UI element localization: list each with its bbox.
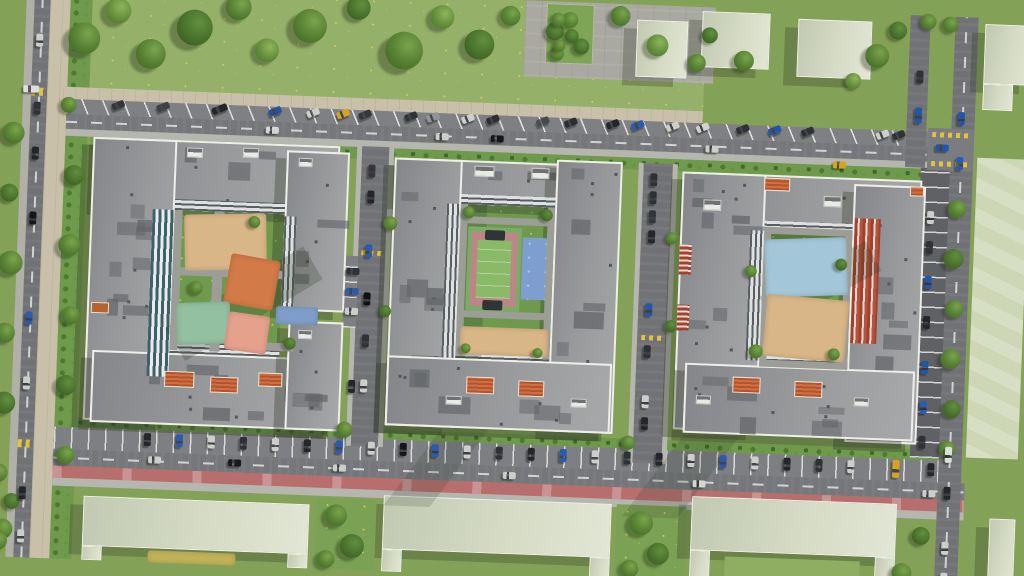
car xyxy=(32,146,39,159)
car xyxy=(228,459,241,466)
roof-patch xyxy=(583,302,605,311)
roof-vent xyxy=(433,207,436,210)
south-building-1 xyxy=(82,496,310,555)
roof-vent xyxy=(122,316,125,319)
roof-vent xyxy=(614,173,617,176)
car xyxy=(368,164,375,177)
roof-vent xyxy=(456,367,459,370)
complex3-west-orange-accent-1 xyxy=(679,244,692,274)
roof-patch xyxy=(693,179,704,193)
roof-vent xyxy=(734,197,737,200)
car xyxy=(176,434,183,447)
car xyxy=(926,241,933,254)
car xyxy=(272,438,279,451)
car xyxy=(945,447,953,463)
roof-patch xyxy=(875,356,894,371)
tree xyxy=(664,320,676,332)
roof-patch xyxy=(571,219,591,235)
car xyxy=(266,126,279,133)
car xyxy=(927,211,934,224)
car xyxy=(687,454,694,467)
south-building-2-stub-e xyxy=(589,557,610,576)
roof-pergola xyxy=(764,178,790,192)
tree xyxy=(920,13,937,30)
car xyxy=(463,445,470,458)
roof-patch xyxy=(888,321,907,329)
north-building-4-ext xyxy=(982,84,1013,111)
car xyxy=(641,417,648,430)
tree xyxy=(666,232,678,244)
roof-vent xyxy=(843,197,846,200)
pink-playground-left xyxy=(224,311,271,355)
roof-vent xyxy=(824,415,827,418)
roof-vent xyxy=(314,371,317,374)
complex3-bottom-wing xyxy=(683,363,916,442)
midright-speedbump xyxy=(641,335,663,341)
car xyxy=(491,135,504,142)
roof-vent xyxy=(743,184,746,187)
car xyxy=(36,34,43,47)
north-building-3 xyxy=(796,19,872,80)
car xyxy=(833,161,846,168)
south-building-3 xyxy=(690,496,897,558)
roof-vent xyxy=(189,407,192,410)
roof-patch xyxy=(571,169,585,180)
car xyxy=(25,311,32,324)
car xyxy=(144,433,151,446)
roof-patch xyxy=(559,413,572,425)
car xyxy=(692,480,705,487)
car xyxy=(362,334,369,347)
car xyxy=(655,453,662,466)
tree xyxy=(891,563,912,576)
roof-access-box xyxy=(445,396,461,406)
roof-vent xyxy=(315,241,318,244)
car xyxy=(751,456,758,469)
car xyxy=(892,460,900,478)
roof-patch xyxy=(414,372,427,387)
car xyxy=(17,529,24,542)
roof-pergola xyxy=(518,380,545,397)
car xyxy=(336,440,343,453)
roof-vent xyxy=(888,282,891,285)
car xyxy=(360,379,367,392)
car xyxy=(304,439,311,452)
car xyxy=(23,376,30,389)
roof-pergola xyxy=(258,372,283,387)
roof-patch xyxy=(713,308,727,321)
roof-patch xyxy=(573,311,604,329)
roof-vent xyxy=(326,184,329,187)
car xyxy=(346,288,359,295)
car xyxy=(916,70,923,83)
car xyxy=(815,459,822,472)
roof-vent xyxy=(555,419,558,422)
car xyxy=(346,268,359,275)
north-building-4 xyxy=(983,24,1024,86)
car xyxy=(918,436,925,449)
car xyxy=(367,190,374,203)
car xyxy=(365,244,372,257)
car xyxy=(941,542,948,555)
car xyxy=(363,292,370,305)
car xyxy=(956,157,963,170)
roof-patch xyxy=(732,216,750,225)
blue-mat-left xyxy=(275,306,318,326)
roof-access-box xyxy=(854,397,869,407)
car xyxy=(847,460,854,473)
south-building-3-stub-w xyxy=(689,550,710,576)
roof-vent xyxy=(538,402,541,405)
car xyxy=(936,144,949,151)
car xyxy=(333,464,346,471)
roof-pergola xyxy=(732,377,761,394)
roof-vent xyxy=(194,165,197,168)
car xyxy=(399,443,406,456)
roof-vent xyxy=(706,325,709,328)
complex1-right-wing-lower xyxy=(284,320,343,431)
car xyxy=(705,145,718,152)
roof-vent xyxy=(189,396,192,399)
car xyxy=(645,303,652,316)
roof-pergola xyxy=(164,371,195,388)
car xyxy=(923,316,930,329)
car xyxy=(559,449,566,462)
roof-vent xyxy=(527,180,530,183)
car xyxy=(919,401,926,414)
car xyxy=(649,210,656,223)
car xyxy=(924,276,931,289)
tree xyxy=(620,559,639,576)
yellow-court-bottom xyxy=(147,550,235,565)
south-building-4 xyxy=(987,519,1016,576)
car xyxy=(527,448,534,461)
roof-patch xyxy=(812,421,843,437)
car xyxy=(33,102,40,115)
roof-vent xyxy=(299,350,302,353)
car xyxy=(623,451,630,464)
south-courtyard-3 xyxy=(724,556,860,576)
roof-vent xyxy=(730,348,733,351)
roof-access-box xyxy=(703,199,721,211)
orange-playground-left xyxy=(223,253,281,311)
tree xyxy=(845,73,862,90)
roof-patch xyxy=(881,302,895,319)
roof-patch xyxy=(702,376,729,386)
roof-access-box xyxy=(531,168,549,180)
tree xyxy=(0,183,19,202)
car xyxy=(921,361,928,374)
roof-access-box xyxy=(298,330,312,340)
roof-patch xyxy=(883,335,912,350)
car xyxy=(958,112,965,125)
car xyxy=(648,230,655,243)
car xyxy=(23,85,39,93)
roof-pergola xyxy=(210,376,239,393)
crosswalk-west-south xyxy=(18,439,34,448)
roof-access-box xyxy=(696,395,711,405)
roof-access-box xyxy=(243,148,259,159)
roof-patch xyxy=(557,342,569,356)
car xyxy=(643,345,650,358)
south-building-1-stub-w xyxy=(81,546,102,561)
roof-vent xyxy=(127,146,130,149)
world xyxy=(0,0,1024,576)
car xyxy=(943,487,950,500)
car xyxy=(19,486,26,499)
aerial-masterplan-render xyxy=(0,0,1024,576)
roof-patch xyxy=(130,205,145,219)
roof-vent xyxy=(826,405,829,408)
car xyxy=(650,173,657,186)
car xyxy=(495,446,502,459)
roof-access-box xyxy=(298,158,312,168)
roof-patch xyxy=(519,399,539,414)
roof-vent xyxy=(694,387,697,390)
roof-vent xyxy=(913,312,916,315)
roof-vent xyxy=(722,190,725,193)
roof-patch xyxy=(203,407,231,421)
roof-access-box xyxy=(187,147,203,158)
tree xyxy=(0,463,8,482)
east-pale-field xyxy=(966,158,1024,460)
sport-goal-south xyxy=(482,300,502,311)
roof-vent xyxy=(409,220,412,223)
roof-access-box xyxy=(823,196,841,208)
roof-vent xyxy=(500,423,503,426)
car xyxy=(436,133,449,140)
car xyxy=(922,490,935,497)
car xyxy=(431,444,438,457)
roof-patch xyxy=(740,416,757,434)
car xyxy=(649,191,656,204)
roof-patch xyxy=(317,220,349,229)
south-building-2-stub-w xyxy=(381,549,402,572)
roof-vent xyxy=(399,374,402,377)
south-building-1-stub-e xyxy=(287,554,308,569)
sport-goal-north xyxy=(485,230,505,241)
car xyxy=(783,458,790,471)
roof-vent xyxy=(771,411,774,414)
car xyxy=(719,455,726,468)
roof-patch xyxy=(407,279,429,298)
roof-pergola xyxy=(910,186,924,197)
roof-patch xyxy=(248,411,264,421)
roof-vent xyxy=(131,193,134,196)
sport-field-pitch xyxy=(476,240,512,299)
roof-patch xyxy=(293,393,320,407)
roof-vent xyxy=(310,407,313,410)
roof-patch xyxy=(259,151,277,160)
roof-patch xyxy=(401,191,418,201)
roof-pergola xyxy=(794,381,823,398)
car xyxy=(29,211,36,224)
car xyxy=(641,395,648,408)
roof-vent xyxy=(403,376,406,379)
car xyxy=(591,450,598,463)
car xyxy=(348,380,355,393)
complex2-bottom-wing xyxy=(385,355,613,434)
complex1-entry-canopy xyxy=(91,302,109,314)
complex3-west-orange-accent-2 xyxy=(676,304,689,330)
roof-vent xyxy=(609,263,612,266)
teal-playground-left xyxy=(176,301,231,345)
tree xyxy=(911,527,930,546)
car xyxy=(927,463,934,476)
roof-patch xyxy=(228,162,251,181)
roof-access-box xyxy=(570,398,586,408)
roof-patch xyxy=(137,220,152,233)
roof-patch xyxy=(701,212,714,229)
roof-patch xyxy=(819,407,845,415)
roof-pergola xyxy=(466,376,495,394)
roof-access-box xyxy=(474,165,494,177)
car xyxy=(148,456,161,463)
roof-patch xyxy=(133,257,152,270)
roof-patch xyxy=(109,261,121,277)
tree xyxy=(865,43,890,68)
car xyxy=(503,472,516,479)
car xyxy=(240,437,247,450)
roof-vent xyxy=(235,416,238,419)
roof-vent xyxy=(695,342,698,345)
car xyxy=(367,442,374,455)
car xyxy=(345,308,358,315)
scene-tilted xyxy=(0,0,1024,576)
roof-vent xyxy=(591,182,594,185)
tree xyxy=(889,21,908,40)
roof-vent xyxy=(905,258,908,261)
car xyxy=(940,573,947,576)
roof-vent xyxy=(591,193,594,196)
car xyxy=(208,435,215,448)
car xyxy=(915,107,923,123)
